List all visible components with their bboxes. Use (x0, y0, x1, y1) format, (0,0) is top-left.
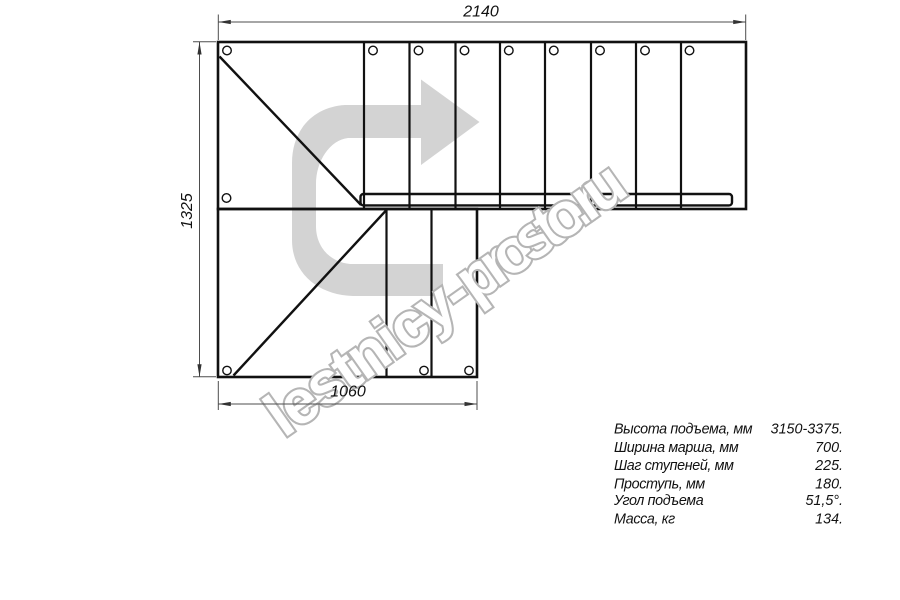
svg-text:Высота подъема, мм: Высота подъема, мм (614, 422, 753, 438)
svg-text:3150-3375.: 3150-3375. (771, 422, 843, 438)
svg-text:700.: 700. (815, 440, 843, 456)
svg-text:Угол подъема: Угол подъема (613, 493, 704, 509)
svg-text:225.: 225. (814, 458, 843, 474)
svg-text:1325: 1325 (179, 193, 196, 229)
svg-text:51,5°.: 51,5°. (805, 493, 843, 509)
svg-text:Ширина марша, мм: Ширина марша, мм (614, 440, 739, 456)
svg-text:Проступь, мм: Проступь, мм (614, 476, 705, 492)
svg-text:134.: 134. (815, 511, 843, 527)
svg-text:2140: 2140 (462, 4, 499, 21)
svg-text:Шаг ступеней, мм: Шаг ступеней, мм (614, 458, 734, 474)
svg-text:180.: 180. (815, 476, 843, 492)
svg-text:1060: 1060 (330, 384, 366, 401)
svg-text:Масса, кг: Масса, кг (614, 511, 675, 527)
